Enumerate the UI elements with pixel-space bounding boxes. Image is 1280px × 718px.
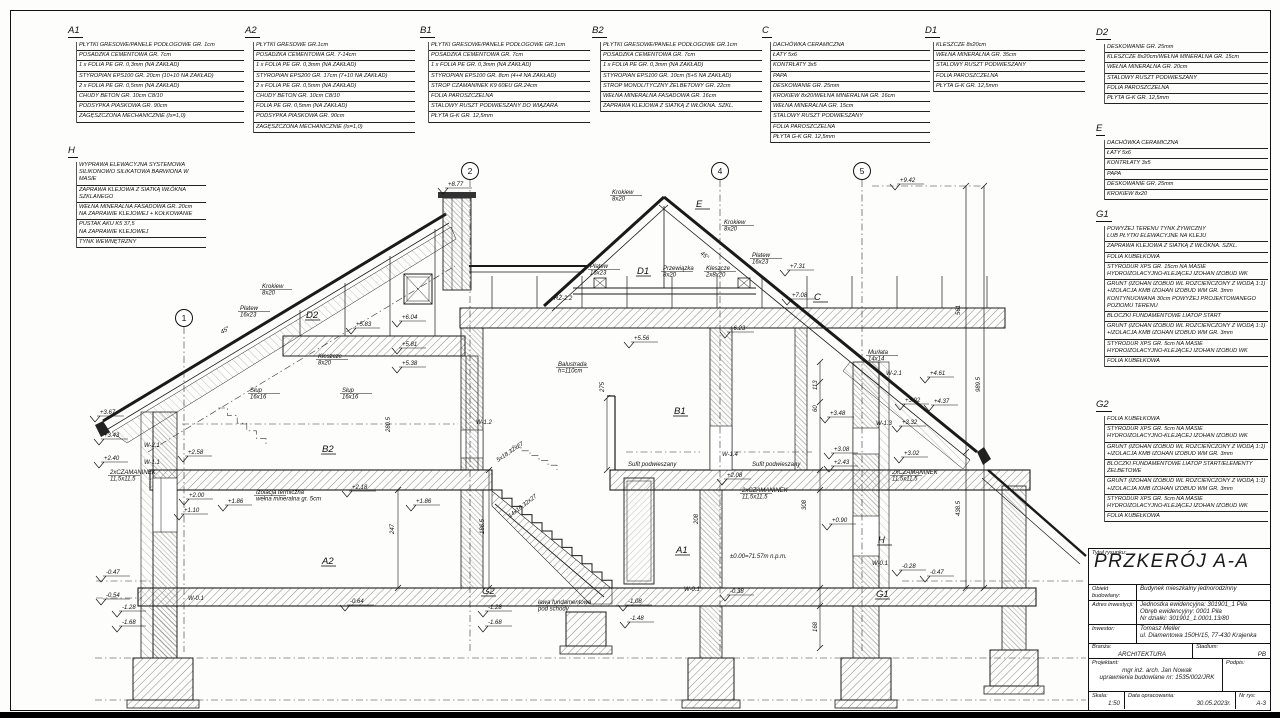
drawing-label: A1: [675, 545, 688, 556]
drawing-label: W-1.2: [476, 420, 493, 426]
spec-row: TYNK WEWNĘTRZNY: [77, 239, 206, 248]
drawing-label: 168: [813, 621, 819, 632]
spec-line: FOLIA PAROSZCZELNA: [1107, 85, 1266, 92]
drawing-label: 275: [600, 381, 606, 393]
spec-row: POSADZKA CEMENTOWA GR. 7cm: [77, 52, 244, 61]
spec-row: STYRODUR XPS GR. 5cm NA MASIEHYDROIZOLAC…: [1105, 496, 1268, 512]
drawing-sheet: +9.42+8.77Krokiew8x20Płatew16x2345°D2+6.…: [0, 0, 1280, 718]
spec-row: DACHÓWKA CERAMICZNA: [771, 42, 930, 51]
spec-line: ZAPRAWA KLEJOWA Z SIATKĄ Z WŁÓKNA. SZKL.: [603, 103, 760, 110]
spec-block-A2: A2PŁYTKI GRESOWE GR.1cmPOSADZKA CEMENTOW…: [245, 26, 415, 134]
spec-block-list: WYPRAWA ELEWACYJNA SYSTEMOWASILIKONOWO S…: [76, 162, 206, 248]
spec-line: DESKOWANIE GR. 25mm: [773, 83, 928, 90]
signature-cell: Podpis:: [1223, 659, 1270, 691]
spec-row: KLESZCZE 8x20cm/WEŁNA MINERALNA GR. 15cm: [1105, 54, 1268, 63]
spec-block-label: G1: [1096, 210, 1112, 222]
spec-line: POSADZKA CEMENTOWA GR. 7cm: [603, 52, 760, 59]
spec-line: PODSYPKA PIASKOWA GR. 90cm: [79, 103, 242, 110]
spec-row: 1 x FOLIA PE GR. 0,3mm (NA ZAKŁAD): [254, 62, 415, 71]
spec-row: FOLIA KUBEŁKOWA: [1105, 254, 1268, 263]
investor-value: Tomasz Meller ul. Diamentowa 150H/15, 77…: [1137, 625, 1270, 643]
drawing-label: +6.23: [730, 326, 746, 332]
drawing-label: +2.18: [352, 485, 368, 491]
drawing-label: Kleszcze2x8x20: [705, 266, 731, 279]
drawing-label: -0.64: [350, 599, 364, 605]
spec-row: PŁYTKI GRESOWE/PANELE PODŁOGOWE GR. 1cm: [77, 42, 244, 51]
spec-line: +IZOLACJA KMB IZOHAN IZOBUD WM GR. 3mm: [1107, 486, 1266, 493]
spec-line: 1 x FOLIA PE GR. 0,3mm (NA ZAKŁAD): [79, 62, 242, 69]
spec-row: PŁYTA G-K GR. 12,5mm: [934, 83, 1085, 92]
drawing-label: 561: [956, 305, 962, 315]
spec-line: PŁYTKI GRESOWE/PANELE PODŁOGOWE GR.1cm: [431, 42, 588, 49]
drawing-label: Kleszcze8x20: [318, 354, 343, 367]
spec-line: DESKOWANIE GR. 25mm: [1107, 181, 1266, 188]
spec-line: POSADZKA CEMENTOWA GR. 7cm: [431, 52, 588, 59]
spec-block-label: A2: [245, 26, 260, 38]
drawing-label: +9.42: [900, 178, 916, 184]
drawing-label: D2: [306, 310, 319, 321]
spec-block-C: CDACHÓWKA CERAMICZNAŁATY 5x6KONTRŁATY 3x…: [762, 26, 930, 144]
spec-row: GRUNT (IZOHAN IZOBUD WL ROZCIEŃCZONY Z W…: [1105, 444, 1268, 460]
spec-line: DACHÓWKA CERAMICZNA: [1107, 140, 1266, 147]
drawing-label: -0.47: [930, 570, 944, 576]
grid-bubble-number: 4: [718, 166, 723, 176]
drawing-label: +8.77: [448, 182, 464, 188]
spec-line: 2 x FOLIA PE GR. 0,5mm (NA ZAKŁAD): [256, 83, 413, 90]
spec-row: FOLIA PAROSZCZELNA: [1105, 85, 1268, 94]
drawing-label: Przewiązka8x20: [663, 266, 694, 279]
spec-block-list: PŁYTKI GRESOWE/PANELE PODŁOGOWE GR.1cmPO…: [600, 42, 762, 112]
spec-row: WYPRAWA ELEWACYJNA SYSTEMOWASILIKONOWO S…: [77, 162, 206, 186]
spec-row: KROKIEW 8x20/WEŁNA MINERALNA GR. 16cm: [771, 93, 930, 102]
drawing-label: +1.86: [416, 499, 432, 505]
drawing-label: +5.83: [356, 322, 372, 328]
spec-line: PŁYTA G-K GR. 12,5mm: [1107, 95, 1266, 102]
spec-line: WEŁNA MINERALNA FASADOWA GR. 16cm: [603, 93, 760, 100]
spec-line: STYROPIAN EPS100 GR. 20cm (10+10 NA ZAKŁ…: [79, 73, 242, 80]
spec-line: 1 x FOLIA PE GR. 0,3mm (NA ZAKŁAD): [431, 62, 588, 69]
spec-line: KROKIEW 8x20/WEŁNA MINERALNA GR. 16cm: [773, 93, 928, 100]
spec-line: 1 x FOLIA PE GR. 0,3mm (NA ZAKŁAD): [603, 62, 760, 69]
spec-line: STYROPIAN EPS100 GR. 8cm (4+4 NA ZAKŁAD): [431, 73, 588, 80]
drawing-label: E: [696, 199, 703, 210]
spec-line: CHUDY BETON GR. 10cm C8/10: [256, 93, 413, 100]
spec-line: ZAGĘSZCZONA MECHANICZNIE (Is=1,0): [256, 124, 413, 131]
drawing-label: -1.28: [488, 605, 502, 611]
spec-line: TYNK WEWNĘTRZNY: [79, 239, 204, 246]
object-label: Obiekt budowlany:: [1089, 585, 1137, 600]
drawing-label: Płatew16x23: [752, 253, 771, 266]
spec-block-G2: G2FOLIA KUBEŁKOWASTYRODUR XPS GR. 5cm NA…: [1096, 400, 1268, 523]
spec-row: STYROPIAN EPS100 GR. 8cm (4+4 NA ZAKŁAD): [429, 73, 590, 82]
drawing-label: B1: [674, 406, 686, 417]
spec-row: ZAGĘSZCZONA MECHANICZNIE (Is=1,0): [77, 113, 244, 122]
drawing-label: 60: [813, 405, 819, 412]
stage-value: PB: [1193, 651, 1270, 658]
spec-line: ZAPRAWA KLEJOWA Z SIATKĄ Z WŁÓKNA. SZKL.: [1107, 243, 1266, 250]
drawing-label: +0.90: [832, 518, 848, 524]
spec-row: 1 x FOLIA PE GR. 0,3mm (NA ZAKŁAD): [77, 62, 244, 71]
spec-row: STROP MONOLITYCZNY ŻELBETOWY GR. 22cm: [601, 83, 762, 92]
drawing-label: +2.08: [727, 473, 743, 479]
branch-value: ARCHITEKTURA: [1089, 651, 1192, 658]
spec-row: PODSYPKA PIASKOWA GR. 90cm: [254, 113, 415, 122]
spec-line: KLESZCZE 8x20cm/WEŁNA MINERALNA GR. 15cm: [1107, 54, 1266, 61]
spec-line: FOLIA PAROSZCZELNA: [773, 124, 928, 131]
drawing-label: G1: [876, 589, 889, 600]
spec-row: WEŁNA MINERALNA GR. 15cm: [771, 103, 930, 112]
spec-row: BLOCZKI FUNDAMENTOWE LIATOP START/ELEMEN…: [1105, 461, 1268, 477]
drawing-label: 5x18,32x27: [496, 441, 526, 464]
spec-row: STYRODUR XPS GR. 15cm NA MASIEHYDROIZOLA…: [1105, 264, 1268, 280]
spec-block-H: HWYPRAWA ELEWACYJNA SYSTEMOWASILIKONOWO …: [68, 146, 206, 249]
spec-row: GRUNT (IZOHAN IZOBUD WL ROZCIEŃCZONY Z W…: [1105, 323, 1268, 339]
spec-line: +IZOLACJA KMB IZOHAN IZOBUD WM GR. 3mm: [1107, 330, 1266, 337]
drawing-label: -0.28: [902, 564, 916, 570]
spec-line: +IZOLACJA KMB IZOHAN IZOBUD WM GR. 3mm: [1107, 451, 1266, 458]
spec-line: 2 x FOLIA PE GR. 0,5mm (NA ZAKŁAD): [79, 83, 242, 90]
spec-row: FOLIA KUBEŁKOWA: [1105, 358, 1268, 367]
spec-line: STALOWY RUSZT PODWIESZANY: [1107, 75, 1266, 82]
drawing-label: +3.67: [100, 410, 116, 416]
stage-cell: Stadium: PB: [1193, 644, 1270, 658]
drawing-label: +3.43: [104, 433, 120, 439]
object-value: Budynek mieszkalny jednorodzinny: [1137, 585, 1270, 600]
spec-line: SILIKONOWO SILIKATOWA BARWIONA W MASIE: [79, 169, 204, 183]
spec-line: FOLIA KUBEŁKOWA: [1107, 513, 1266, 520]
spec-row: ŁATY 5x6: [771, 52, 930, 61]
drawing-label: W-0.1: [188, 596, 204, 602]
spec-row: ŁATY 5x6: [1105, 150, 1268, 159]
spec-line: PŁYTA G-K GR. 12,5mm: [773, 134, 928, 141]
drawing-label: Krokiew8x20: [612, 190, 634, 203]
spec-line: WEŁNA MINERALNA GR. 35cm: [936, 52, 1083, 59]
spec-block-label: D2: [1096, 28, 1111, 40]
spec-line: BLOCZKI FUNDAMENTOWE LIATOP START: [1107, 313, 1266, 320]
drawing-label: +3.48: [830, 411, 846, 417]
spec-line: PAPA: [773, 73, 928, 80]
spec-line: ZAGĘSZCZONA MECHANICZNIE (Is=1,0): [79, 113, 242, 120]
spec-line: FOLIA PAROSZCZELNA: [936, 73, 1083, 80]
spec-row: PUSTAK AKU K5 37,5NA ZAPRAWIE KLEJOWEJ: [77, 221, 206, 237]
spec-line: DACHÓWKA CERAMICZNA: [773, 42, 928, 49]
spec-block-label: D1: [925, 26, 940, 38]
scale-cell: Skala: 1:50: [1089, 692, 1125, 709]
spec-line: PAPA: [1107, 171, 1266, 178]
spec-line: KONTRŁATY 3x5: [1107, 160, 1266, 167]
spec-line: ZAPRAWA KLEJOWA Z SIATKĄ WŁÓKNA SZKLANEG…: [79, 187, 204, 201]
spec-row: PŁYTKI GRESOWE/PANELE PODŁOGOWE GR.1cm: [601, 42, 762, 51]
spec-row: POSADZKA CEMENTOWA GR. 7cm: [429, 52, 590, 61]
spec-row: STALOWY RUSZT PODWIESZANY DO WIĄZARA: [429, 103, 590, 112]
spec-line: KROKIEW 8x20: [1107, 191, 1266, 198]
drawing-label: +1.86: [228, 499, 244, 505]
spec-row: STROP CZAMANINEK K9 60EU GR.24cm: [429, 83, 590, 92]
spec-row: PŁYTKI GRESOWE/PANELE PODŁOGOWE GR.1cm: [429, 42, 590, 51]
drawing-label: -1.28: [122, 605, 136, 611]
spec-row: KLESZCZE 8x20cm: [934, 42, 1085, 51]
spec-row: FOLIA PAROSZCZELNA: [771, 124, 930, 133]
spec-line: PUSTAK AKU K5 37,5: [79, 221, 204, 228]
drawing-label: 280.5: [386, 416, 392, 433]
spec-line: POSADZKA CEMENTOWA GR. 7-14cm: [256, 52, 413, 59]
spec-line: FOLIA PAROSZCZELNA: [431, 93, 588, 100]
spec-line: STYRODUR XPS GR. 5cm NA MASIE: [1107, 341, 1266, 348]
spec-row: WEŁNA MINERALNA FASADOWA GR. 16cm: [601, 93, 762, 102]
drawing-label: H: [878, 535, 885, 546]
spec-row: ZAPRAWA KLEJOWA Z SIATKĄ WŁÓKNA SZKLANEG…: [77, 187, 206, 203]
spec-block-D2: D2DESKOWANIE GR. 25mmKLESZCZE 8x20cm/WEŁ…: [1096, 28, 1268, 105]
drawing-label: Balustradah=110cm: [558, 362, 587, 375]
spec-row: FOLIA PAROSZCZELNA: [934, 73, 1085, 82]
drawing-label: W-1.1: [144, 460, 160, 466]
spec-line: GRUNT (IZOHAN IZOBUD WL ROZCIEŃCZONY Z W…: [1107, 323, 1266, 330]
drawing-label: A2: [321, 556, 334, 567]
spec-row: KONTRŁATY 3x5: [1105, 160, 1268, 169]
spec-line: LUB PŁYTKI ELEWACYJNE NA KLEJU: [1107, 233, 1266, 240]
drawing-title: PRZKERÓJ A-A: [1089, 557, 1270, 565]
drawing-label: 45°: [699, 251, 710, 262]
spec-row: POWYŻEJ TERENU TYNK ŻYWICZNYLUB PŁYTKI E…: [1105, 226, 1268, 242]
spec-row: ZAGĘSZCZONA MECHANICZNIE (Is=1,0): [254, 124, 415, 133]
drawing-label: Krokiew8x20: [724, 220, 746, 233]
spec-line: WYPRAWA ELEWACYJNA SYSTEMOWA: [79, 162, 204, 169]
spec-line: STYRODUR XPS GR. 15cm NA MASIE: [1107, 264, 1266, 271]
drawing-label: +1.10: [184, 508, 200, 514]
spec-line: PŁYTA G-K GR. 12,5mm: [431, 113, 588, 120]
spec-block-list: POWYŻEJ TERENU TYNK ŻYWICZNYLUB PŁYTKI E…: [1104, 226, 1268, 367]
drawing-label: Izolacja termicznawełna mineralna gr. 5c…: [256, 490, 321, 503]
spec-row: FOLIA PE GR. 0,5mm (NA ZAKŁAD): [254, 103, 415, 112]
spec-row: STALOWY RUSZT PODWIESZANY: [934, 62, 1085, 71]
spec-line: KONTYNUOWANA 30cm POWYŻEJ PROJEKTOWANEGO: [1107, 296, 1266, 303]
drawing-labels: +9.42+8.77Krokiew8x20Płatew16x2345°D2+6.…: [90, 163, 987, 653]
spec-row: DESKOWANIE GR. 25mm: [1105, 44, 1268, 53]
spec-block-G1: G1POWYŻEJ TERENU TYNK ŻYWICZNYLUB PŁYTKI…: [1096, 210, 1268, 368]
spec-row: ZAPRAWA KLEJOWA Z SIATKĄ Z WŁÓKNA. SZKL.: [1105, 243, 1268, 252]
drawing-label: +5.81: [402, 342, 417, 348]
spec-block-label: B1: [420, 26, 435, 38]
spec-line: POWYŻEJ TERENU TYNK ŻYWICZNY: [1107, 226, 1266, 233]
spec-line: PŁYTKI GRESOWE/PANELE PODŁOGOWE GR.1cm: [603, 42, 760, 49]
spec-line: BLOCZKI FUNDAMENTOWE LIATOP START/ELEMEN…: [1107, 461, 1266, 475]
drawing-label: C: [814, 292, 821, 303]
date-cell: Data opracowania: 30.05.2023r.: [1125, 692, 1236, 709]
spec-block-label: E: [1096, 124, 1105, 136]
spec-row: CHUDY BETON GR. 10cm C8/10: [254, 93, 415, 102]
spec-block-label: H: [68, 146, 78, 158]
drawing-label: +4.61: [930, 371, 945, 377]
spec-row: BLOCZKI FUNDAMENTOWE LIATOP START: [1105, 313, 1268, 322]
spec-line: PŁYTA G-K GR. 12,5mm: [936, 83, 1083, 90]
drawing-label: -1.48: [630, 616, 644, 622]
spec-line: KLESZCZE 8x20cm: [936, 42, 1083, 49]
spec-row: GRUNT (IZOHAN IZOBUD WL ROZCIEŃCZONY Z W…: [1105, 478, 1268, 494]
drawing-label: W-0.1: [872, 561, 888, 567]
spec-row: KROKIEW 8x20: [1105, 191, 1268, 200]
spec-line: 1 x FOLIA PE GR. 0,3mm (NA ZAKŁAD): [256, 62, 413, 69]
address-value: Jednostka ewidencyjna: 301901_1 Piła Obr…: [1137, 601, 1270, 624]
spec-row: STALOWY RUSZT PODWIESZANY: [771, 113, 930, 122]
drawing-label: Sufit podwieszany: [752, 462, 801, 468]
spec-block-list: FOLIA KUBEŁKOWASTYRODUR XPS GR. 5cm NA M…: [1104, 416, 1268, 522]
spec-block-label: A1: [68, 26, 83, 38]
designer-cell: Projektant: mgr inż. arch. Jan Nowak upr…: [1089, 659, 1223, 691]
spec-block-list: PŁYTKI GRESOWE/PANELE PODŁOGOWE GR.1cmPO…: [428, 42, 590, 123]
spec-row: STYRODUR XPS GR. 5cm NA MASIEHYDROIZOLAC…: [1105, 426, 1268, 442]
spec-row: STYROPIAN EPS200 GR. 17cm (7+10 NA ZAKŁA…: [254, 73, 415, 82]
grid-bubble-number: 5: [860, 166, 865, 176]
spec-row: FOLIA KUBEŁKOWA: [1105, 513, 1268, 522]
drawing-label: RŻ-2.2: [554, 295, 573, 302]
branch-cell: Branża: ARCHITEKTURA: [1089, 644, 1193, 658]
spec-line: DESKOWANIE GR. 25mm: [1107, 44, 1266, 51]
spec-row: 2 x FOLIA PE GR. 0,5mm (NA ZAKŁAD): [254, 83, 415, 92]
drawing-label: 45°: [220, 326, 231, 336]
drawing-label: Krokiew8x20: [262, 284, 284, 297]
spec-block-label: B2: [592, 26, 607, 38]
spec-line: POSADZKA CEMENTOWA GR. 7cm: [79, 52, 242, 59]
spec-row: 1 x FOLIA PE GR. 0,3mm (NA ZAKŁAD): [601, 62, 762, 71]
spec-line: WEŁNA MINERALNA FASADOWA GR. 20cm: [79, 204, 204, 211]
spec-line: FOLIA KUBEŁKOWA: [1107, 416, 1266, 423]
spec-block-D1: D1KLESZCZE 8x20cmWEŁNA MINERALNA GR. 35c…: [925, 26, 1085, 93]
spec-line: FOLIA PE GR. 0,5mm (NA ZAKŁAD): [256, 103, 413, 110]
drawing-label: 247: [390, 523, 396, 535]
spec-line: STYROPIAN EPS100 GR. 10cm (5+5 NA ZAKŁAD…: [603, 73, 760, 80]
spec-row: 1 x FOLIA PE GR. 0,3mm (NA ZAKŁAD): [429, 62, 590, 71]
drawing-label: ±0.00=71.57m n.p.m.: [730, 554, 787, 560]
spec-line: STYROPIAN EPS200 GR. 17cm (7+10 NA ZAKŁA…: [256, 73, 413, 80]
spec-row: ZAPRAWA KLEJOWA Z SIATKĄ Z WŁÓKNA. SZKL.: [601, 103, 762, 112]
spec-block-E: EDACHÓWKA CERAMICZNAŁATY 5x6KONTRŁATY 3x…: [1096, 124, 1268, 201]
spec-row: FOLIA PAROSZCZELNA: [429, 93, 590, 102]
spec-row: CHUDY BETON GR. 10cm C8/10: [77, 93, 244, 102]
drawing-label: +3.02: [904, 451, 920, 457]
spec-block-list: PŁYTKI GRESOWE GR.1cmPOSADZKA CEMENTOWA …: [253, 42, 415, 133]
spec-row: STYROPIAN EPS100 GR. 20cm (10+10 NA ZAKŁ…: [77, 73, 244, 82]
spec-line: HYDROIZOLACYJNO-KLEJĄCEJ IZOHAN IZOBUD W…: [1107, 433, 1266, 440]
spec-line: STROP MONOLITYCZNY ŻELBETOWY GR. 22cm: [603, 83, 760, 90]
spec-line: CHUDY BETON GR. 10cm C8/10: [79, 93, 242, 100]
spec-line: WEŁNA MINERALNA GR. 15cm: [773, 103, 928, 110]
spec-row: POSADZKA CEMENTOWA GR. 7-14cm: [254, 52, 415, 61]
spec-block-list: DACHÓWKA CERAMICZNAŁATY 5x6KONTRŁATY 3x5…: [770, 42, 930, 143]
spec-row: PODSYPKA PIASKOWA GR. 90cm: [77, 103, 244, 112]
spec-row: DACHÓWKA CERAMICZNA: [1105, 140, 1268, 149]
drawing-label: W-0.1: [684, 587, 700, 593]
spec-line: NA ZAPRAWIE KLEJOWEJ: [79, 229, 204, 236]
drawing-label: +4.37: [934, 399, 950, 405]
drawing-label: +5.38: [402, 361, 418, 367]
spec-block-B2: B2PŁYTKI GRESOWE/PANELE PODŁOGOWE GR.1cm…: [592, 26, 762, 113]
drawing-label: 308: [802, 499, 808, 510]
spec-row: 2 x FOLIA PE GR. 0,5mm (NA ZAKŁAD): [77, 83, 244, 92]
drawing-label: W-1.4: [722, 452, 739, 458]
spec-line: ŁATY 5x6: [773, 52, 928, 59]
address-label: Adres inwestycji:: [1089, 601, 1137, 624]
sheet-no-cell: Nr rys: A-3: [1236, 692, 1270, 709]
spec-line: HYDROIZOLACYJNO-KLEJĄCEJ IZOHAN IZOBUD W…: [1107, 348, 1266, 355]
drawing-label: -0.54: [106, 593, 120, 599]
spec-line: STYRODUR XPS GR. 5cm NA MASIE: [1107, 426, 1266, 433]
drawing-label: B2: [322, 444, 334, 455]
drawing-label: +3.32: [902, 420, 918, 426]
spec-line: +IZOLACJA KMB IZOHAN IZOBUD WM GR. 3mm: [1107, 288, 1266, 295]
spec-line: NA ZAPRAWIE KLEJOWEJ + KOŁKOWANIE: [79, 211, 204, 218]
title-block: Tytuł rysunku: PRZKERÓJ A-A Obiekt budow…: [1088, 548, 1271, 711]
spec-row: PŁYTA G-K GR. 12,5mm: [1105, 95, 1268, 104]
drawing-label: 2xCZAMANINEK11,5x11,5: [741, 488, 789, 501]
spec-row: PŁYTKI GRESOWE GR.1cm: [254, 42, 415, 51]
drawing-label: D1: [637, 266, 649, 277]
drawing-label: 438.5: [956, 500, 962, 516]
spec-line: WEŁNA MINERALNA GR. 20cm: [1107, 64, 1266, 71]
spec-row: WEŁNA MINERALNA GR. 35cm: [934, 52, 1085, 61]
drawing-label: +7.08: [792, 293, 808, 299]
spec-line: STYRODUR XPS GR. 5cm NA MASIE: [1107, 496, 1266, 503]
spec-row: DESKOWANIE GR. 25mm: [771, 83, 930, 92]
drawing-label: 113: [813, 380, 819, 390]
spec-line: GRUNT (IZOHAN IZOBUD WL ROZCIEŃCZONY Z W…: [1107, 281, 1266, 288]
spec-row: WEŁNA MINERALNA GR. 20cm: [1105, 64, 1268, 73]
sheet-bottom-bar: [0, 712, 1280, 718]
spec-block-list: PŁYTKI GRESOWE/PANELE PODŁOGOWE GR. 1cmP…: [76, 42, 244, 123]
spec-line: FOLIA KUBEŁKOWA: [1107, 254, 1266, 261]
drawing-label: +6.04: [402, 315, 418, 321]
drawing-label: W-1.3: [876, 421, 893, 427]
drawing-label: Sufit podwieszany: [628, 462, 677, 468]
spec-row: GRUNT (IZOHAN IZOBUD WL ROZCIEŃCZONY Z W…: [1105, 281, 1268, 312]
drawing-label: 186.5: [480, 518, 486, 534]
spec-row: STYRODUR XPS GR. 5cm NA MASIEHYDROIZOLAC…: [1105, 341, 1268, 357]
spec-line: POZIOMU TERENU: [1107, 303, 1266, 310]
drawing-label: +2.40: [104, 456, 120, 462]
spec-row: POSADZKA CEMENTOWA GR. 7cm: [601, 52, 762, 61]
spec-line: GRUNT (IZOHAN IZOBUD WL ROZCIEŃCZONY Z W…: [1107, 444, 1266, 451]
drawing-label: +5.56: [634, 336, 650, 342]
spec-row: PŁYTA G-K GR. 12,5mm: [429, 113, 590, 122]
spec-line: STALOWY RUSZT PODWIESZANY: [773, 113, 928, 120]
drawing-label: -1.08: [628, 599, 642, 605]
spec-block-A1: A1PŁYTKI GRESOWE/PANELE PODŁOGOWE GR. 1c…: [68, 26, 244, 124]
drawing-label: -1.68: [488, 620, 502, 626]
drawing-label: +3.92: [905, 398, 921, 404]
drawing-label: +7.31: [790, 264, 805, 270]
spec-line: HYDROIZOLACYJNO-KLEJĄCEJ IZOHAN IZOBUD W…: [1107, 271, 1266, 278]
drawing-label: Słup16x16: [342, 388, 359, 401]
spec-row: STALOWY RUSZT PODWIESZANY: [1105, 75, 1268, 84]
drawing-label: W-2.1: [886, 371, 902, 377]
drawing-label: Murłata14x14: [868, 350, 889, 363]
drawing-label: +2.58: [188, 450, 204, 456]
drawing-label: Płatew16x23: [590, 264, 609, 277]
spec-block-list: DESKOWANIE GR. 25mmKLESZCZE 8x20cm/WEŁNA…: [1104, 44, 1268, 104]
spec-line: GRUNT (IZOHAN IZOBUD WL ROZCIEŃCZONY Z W…: [1107, 478, 1266, 485]
spec-line: STALOWY RUSZT PODWIESZANY DO WIĄZARA: [431, 103, 588, 110]
drawing-label: -0.38: [730, 589, 744, 595]
spec-block-B1: B1PŁYTKI GRESOWE/PANELE PODŁOGOWE GR.1cm…: [420, 26, 590, 124]
grid-bubble-number: 1: [182, 313, 187, 323]
spec-block-list: KLESZCZE 8x20cmWEŁNA MINERALNA GR. 35cmS…: [933, 42, 1085, 92]
spec-line: STALOWY RUSZT PODWIESZANY: [936, 62, 1083, 69]
spec-block-label: G2: [1096, 400, 1112, 412]
spec-line: HYDROIZOLACYJNO-KLEJĄCEJ IZOHAN IZOBUD W…: [1107, 503, 1266, 510]
drawing-label: G2: [482, 586, 495, 597]
spec-line: ŁATY 5x6: [1107, 150, 1266, 157]
drawing-label: 989.5: [976, 376, 982, 392]
spec-row: KONTRŁATY 3x5: [771, 62, 930, 71]
